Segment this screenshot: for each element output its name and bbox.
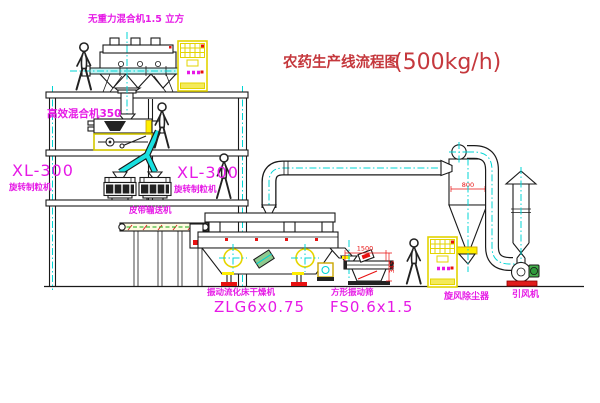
- sieve-height-dimension: 345: [388, 261, 396, 273]
- process-flow-diagram: 1500 345 800: [0, 0, 600, 403]
- control-cabinet-bottom: [428, 237, 457, 287]
- label-gravity-mixer: 无重力混合机1.5 立方: [87, 13, 185, 25]
- sieve-length-dimension: 1500: [357, 245, 374, 253]
- label-sieve-model: FS0.6x1.5: [330, 298, 413, 316]
- cad-drawing-page: 1500 345 800: [0, 0, 600, 403]
- drawing-capacity: (500kg/h): [394, 50, 501, 75]
- label-sieve-name: 方形振动筛: [331, 287, 374, 298]
- label-granulator-left-name: 旋转制粒机: [8, 182, 52, 193]
- label-dryer-model: ZLG6x0.75: [214, 298, 305, 316]
- drawing-title: 农药生产线流程图: [282, 53, 399, 71]
- label-belt-conveyor: 皮带输送机: [128, 205, 172, 216]
- label-granulator-right-name: 旋转制粒机: [173, 184, 217, 195]
- label-high-mixer: 高效混合机350: [47, 107, 121, 120]
- label-granulator-right-model: XL-300: [177, 163, 239, 182]
- worker-figure-ground: [407, 239, 421, 284]
- rotary-granulator-left: [104, 178, 136, 201]
- label-fan: 引风机: [512, 288, 539, 300]
- label-dryer-name: 振动流化床干燥机: [207, 287, 276, 298]
- control-cabinet-top: [178, 41, 207, 91]
- label-granulator-left-model: XL-300: [12, 161, 74, 180]
- rotary-granulator-right: [139, 178, 171, 201]
- label-cyclone: 旋风除尘器: [443, 290, 490, 302]
- dryer-exhaust-duct: [269, 161, 453, 214]
